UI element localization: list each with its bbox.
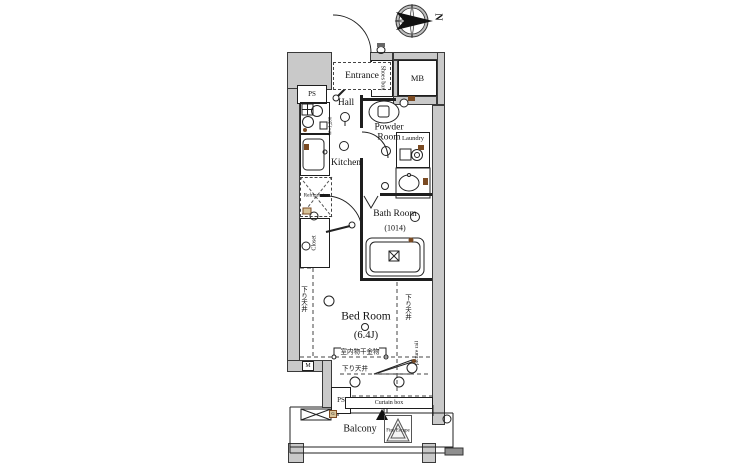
hall-label: Hall — [338, 98, 354, 108]
toilet-icon — [369, 96, 415, 123]
shoes-box-label: Shoes box — [379, 66, 386, 91]
floor-plan: PS MB Entrance Laundry M PS Curtain box … — [0, 0, 730, 470]
meter-box-label: MB — [411, 74, 424, 83]
kitchen-width-label: W=1,200 — [328, 117, 334, 136]
entrance-label: Entrance — [345, 71, 379, 81]
powder-room-label: Powder Room — [364, 123, 414, 144]
lowered-ceiling-bottom-label: 下り天井 — [342, 365, 368, 372]
balcony-label: Balcony — [343, 424, 376, 435]
meter-m-box: M — [302, 361, 314, 371]
curtain-box-label: Curtain box — [375, 400, 404, 406]
stove-counter — [300, 102, 330, 134]
bed-room-size: (6.4J) — [354, 330, 378, 342]
meter-box-room: MB — [398, 60, 437, 96]
misc-marks — [443, 415, 451, 423]
lowered-ceiling-left-label: 下り天井 — [299, 286, 306, 312]
bath-room-label: Bath Room — [373, 209, 417, 219]
fire-escape-label: Fire Escape — [385, 428, 411, 434]
compass-rose-icon — [395, 4, 433, 38]
bath-room-size: (1014) — [384, 225, 405, 234]
refrigerator-label: Refrigerator — [304, 193, 328, 199]
pipe-space-bottom-label: PS — [337, 397, 345, 404]
gas-meter-tag: G — [329, 410, 337, 418]
washbasin-icon — [396, 168, 430, 198]
compass-north-label: N — [433, 13, 444, 20]
meter-m-label: M — [305, 363, 310, 369]
sink-counter — [300, 134, 330, 176]
outdoor-unit-icon — [301, 409, 331, 420]
curtain-box: Curtain box — [345, 397, 433, 409]
picture-rail-label: picture rail — [414, 341, 420, 365]
drying-fixture-label: 室内物干金物 — [341, 348, 380, 355]
bed-room-label: Bed Room — [341, 311, 391, 324]
lowered-ceiling-right-label: 下り天井 — [403, 294, 410, 320]
bathtub-icon — [366, 213, 424, 277]
gas-meter-label: G — [331, 412, 334, 417]
ac-wedge — [374, 359, 417, 374]
pipe-space-top-label: PS — [308, 91, 316, 98]
kitchen-label: Kitchen — [331, 158, 361, 168]
closet-label: Closet — [312, 235, 319, 250]
